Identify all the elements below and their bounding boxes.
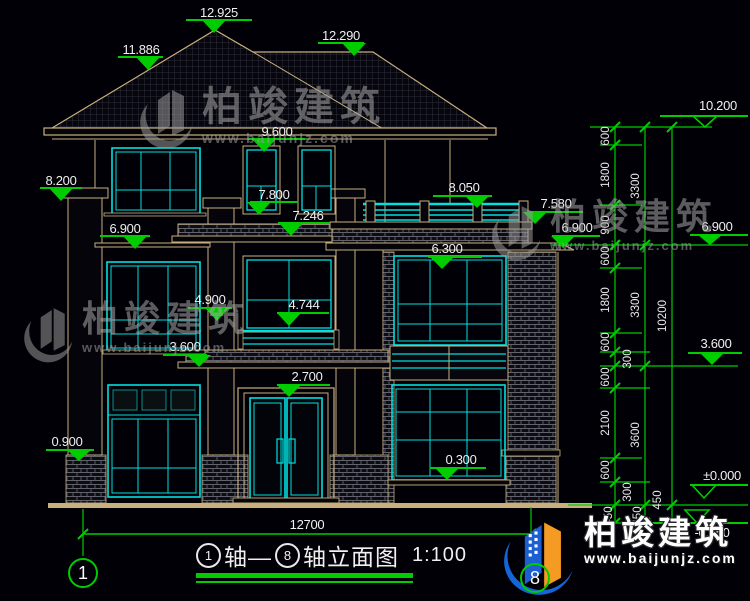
axis-bubble-1: 1: [68, 558, 98, 588]
svg-text:1800: 1800: [600, 162, 612, 188]
title-text-mid: 轴—: [224, 538, 272, 572]
svg-text:7.800: 7.800: [258, 187, 289, 202]
svg-text:10200: 10200: [657, 300, 669, 332]
window-3f-left: [104, 148, 206, 216]
drawing-scale: 1:100: [412, 544, 467, 567]
svg-text:4.744: 4.744: [288, 297, 319, 312]
window-1f-left: [108, 385, 200, 497]
title-axis-end: 8: [275, 543, 300, 568]
svg-text:6.900: 6.900: [701, 219, 732, 234]
svg-text:450: 450: [652, 490, 664, 509]
brand-logo-url: www.baijunjz.com: [584, 550, 737, 566]
svg-text:600: 600: [600, 332, 612, 351]
svg-text:9.600: 9.600: [261, 124, 292, 139]
svg-text:7.580: 7.580: [540, 196, 571, 211]
svg-text:12.290: 12.290: [322, 28, 360, 43]
svg-text:10.200: 10.200: [699, 98, 737, 113]
svg-text:±0.000: ±0.000: [703, 468, 741, 483]
svg-text:12.925: 12.925: [200, 5, 238, 20]
svg-text:600: 600: [600, 460, 612, 479]
total-width-dim: 12700: [290, 517, 325, 532]
main-walls: [95, 140, 558, 503]
axis-bubble-8: 8: [520, 563, 550, 593]
entry-door: [233, 388, 339, 503]
svg-text:2100: 2100: [600, 410, 612, 436]
svg-text:900: 900: [600, 215, 612, 234]
ground-line: [48, 503, 592, 508]
svg-text:6.300: 6.300: [431, 241, 462, 256]
svg-text:300: 300: [622, 349, 634, 368]
svg-text:600: 600: [600, 246, 612, 265]
roof: [44, 30, 496, 139]
svg-text:2.700: 2.700: [291, 369, 322, 384]
title-underline-2: [196, 581, 413, 583]
svg-text:300: 300: [622, 482, 634, 501]
elevation-drawing-canvas: 12700 12.92511.88612.2909.6008.2006.9007…: [0, 0, 750, 601]
balcony-railing-2f: [238, 330, 339, 349]
brand-logo-text: 柏竣建筑: [584, 516, 737, 549]
svg-text:7.246: 7.246: [292, 208, 323, 223]
svg-text:3300: 3300: [630, 173, 642, 199]
svg-text:0.300: 0.300: [445, 452, 476, 467]
window-2f-right: [394, 256, 506, 345]
title-text-tail: 轴立面图: [303, 538, 399, 572]
svg-text:6.900: 6.900: [109, 221, 140, 236]
spandrel-louvers-right: [390, 346, 508, 380]
svg-text:0.900: 0.900: [51, 434, 82, 449]
svg-text:6.900: 6.900: [561, 220, 592, 235]
svg-text:600: 600: [600, 367, 612, 386]
title-underline: [196, 573, 413, 578]
svg-text:8.050: 8.050: [448, 180, 479, 195]
cad-drawing: 12700 12.92511.88612.2909.6008.2006.9007…: [0, 0, 750, 601]
svg-text:3300: 3300: [630, 292, 642, 318]
drawing-title: 1 轴— 8 轴立面图 1:100: [196, 539, 467, 571]
svg-text:8.200: 8.200: [45, 173, 76, 188]
svg-text:11.886: 11.886: [123, 42, 160, 57]
svg-text:3600: 3600: [630, 422, 642, 448]
svg-text:3.600: 3.600: [169, 339, 200, 354]
title-axis-start: 1: [196, 543, 221, 568]
svg-text:3.600: 3.600: [700, 336, 731, 351]
window-3f-center-b: [298, 146, 335, 214]
terrace-railing: [363, 201, 528, 222]
svg-text:600: 600: [600, 126, 612, 145]
svg-text:1800: 1800: [600, 287, 612, 313]
svg-text:4.900: 4.900: [194, 292, 225, 307]
